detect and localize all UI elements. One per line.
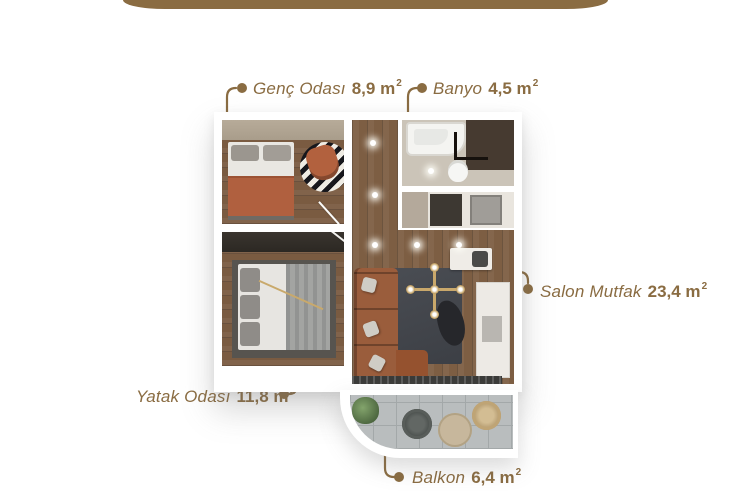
label-balkon: Balkon6,4 m2 [412, 468, 520, 487]
ceiling-light [372, 192, 378, 198]
floorplan-page: Genç Odası8,9 m2 Banyo4,5 m2 Salon Mutfa… [0, 0, 750, 500]
room-salon-mutfak [352, 230, 514, 384]
area-value: 23,4 m [648, 282, 701, 301]
label-banyo: Banyo4,5 m2 [433, 79, 537, 98]
balcony-tiles [350, 395, 513, 449]
leader-dot-balkon [394, 472, 404, 482]
balcony-door-sill [352, 376, 502, 384]
hallway [352, 120, 398, 232]
cabinet [402, 192, 428, 228]
leader-dot-banyo [417, 83, 427, 93]
area-exponent: 2 [396, 78, 402, 89]
chandelier-bulb [430, 263, 439, 272]
room-yatak-odasi [222, 232, 344, 366]
area-exponent: 2 [702, 281, 708, 292]
room-name: Balkon [412, 468, 465, 487]
leader-dot-genc-odasi [237, 83, 247, 93]
sink [470, 195, 502, 225]
shower-cabin [466, 120, 514, 170]
ceiling-light [428, 168, 434, 174]
area-value: 8,9 m [352, 79, 395, 98]
area-exponent: 2 [533, 78, 539, 89]
area-value: 6,4 m [471, 468, 514, 487]
room-name: Banyo [433, 79, 482, 98]
ceiling-light [456, 242, 462, 248]
sink [482, 316, 502, 342]
label-genc-odasi: Genç Odası8,9 m2 [253, 79, 401, 98]
bathtub [406, 122, 466, 156]
cooktop [472, 251, 488, 267]
room-name: Genç Odası [253, 79, 346, 98]
pillow [263, 145, 291, 161]
blanket [228, 176, 294, 218]
wall-shelf [222, 120, 344, 140]
ceiling-light [370, 140, 376, 146]
kitchen-counter-right [476, 282, 510, 378]
wicker-chair [472, 401, 501, 430]
room-banyo [402, 120, 514, 186]
room-genc-odasi [222, 120, 344, 224]
leader-dot-salon-mutfak [523, 284, 533, 294]
room-balkon [340, 390, 518, 458]
wardrobe [222, 232, 344, 252]
top-decorative-band [123, 0, 608, 9]
ceiling-light [414, 242, 420, 248]
pillow [231, 145, 259, 161]
chandelier-bulb [430, 310, 439, 319]
room-area: 8,9 m2 [352, 79, 401, 98]
chandelier-bulb [456, 285, 465, 294]
room-name: Salon Mutfak [540, 282, 642, 301]
chandelier-bulb [430, 285, 439, 294]
wicker-chair [402, 409, 432, 439]
label-salon-mutfak: Salon Mutfak23,4 m2 [540, 282, 706, 301]
door-swing [318, 201, 340, 224]
floorplan [214, 112, 522, 392]
room-area: 4,5 m2 [488, 79, 537, 98]
shower-glass [454, 132, 457, 160]
area-exponent: 2 [516, 467, 522, 478]
room-area: 23,4 m2 [648, 282, 707, 301]
bed-frame [228, 216, 294, 220]
stove [430, 194, 462, 226]
toilet [448, 160, 468, 182]
ceiling-light [372, 242, 378, 248]
plant [352, 397, 379, 424]
pillows [240, 268, 260, 346]
duvet [286, 264, 330, 350]
round-table [438, 413, 472, 447]
single-bed [228, 142, 294, 220]
room-area: 6,4 m2 [471, 468, 520, 487]
chandelier-bulb [406, 285, 415, 294]
kitchen-counter [402, 192, 514, 228]
area-value: 4,5 m [488, 79, 531, 98]
kitchen-island [450, 248, 492, 270]
double-bed [238, 264, 330, 350]
